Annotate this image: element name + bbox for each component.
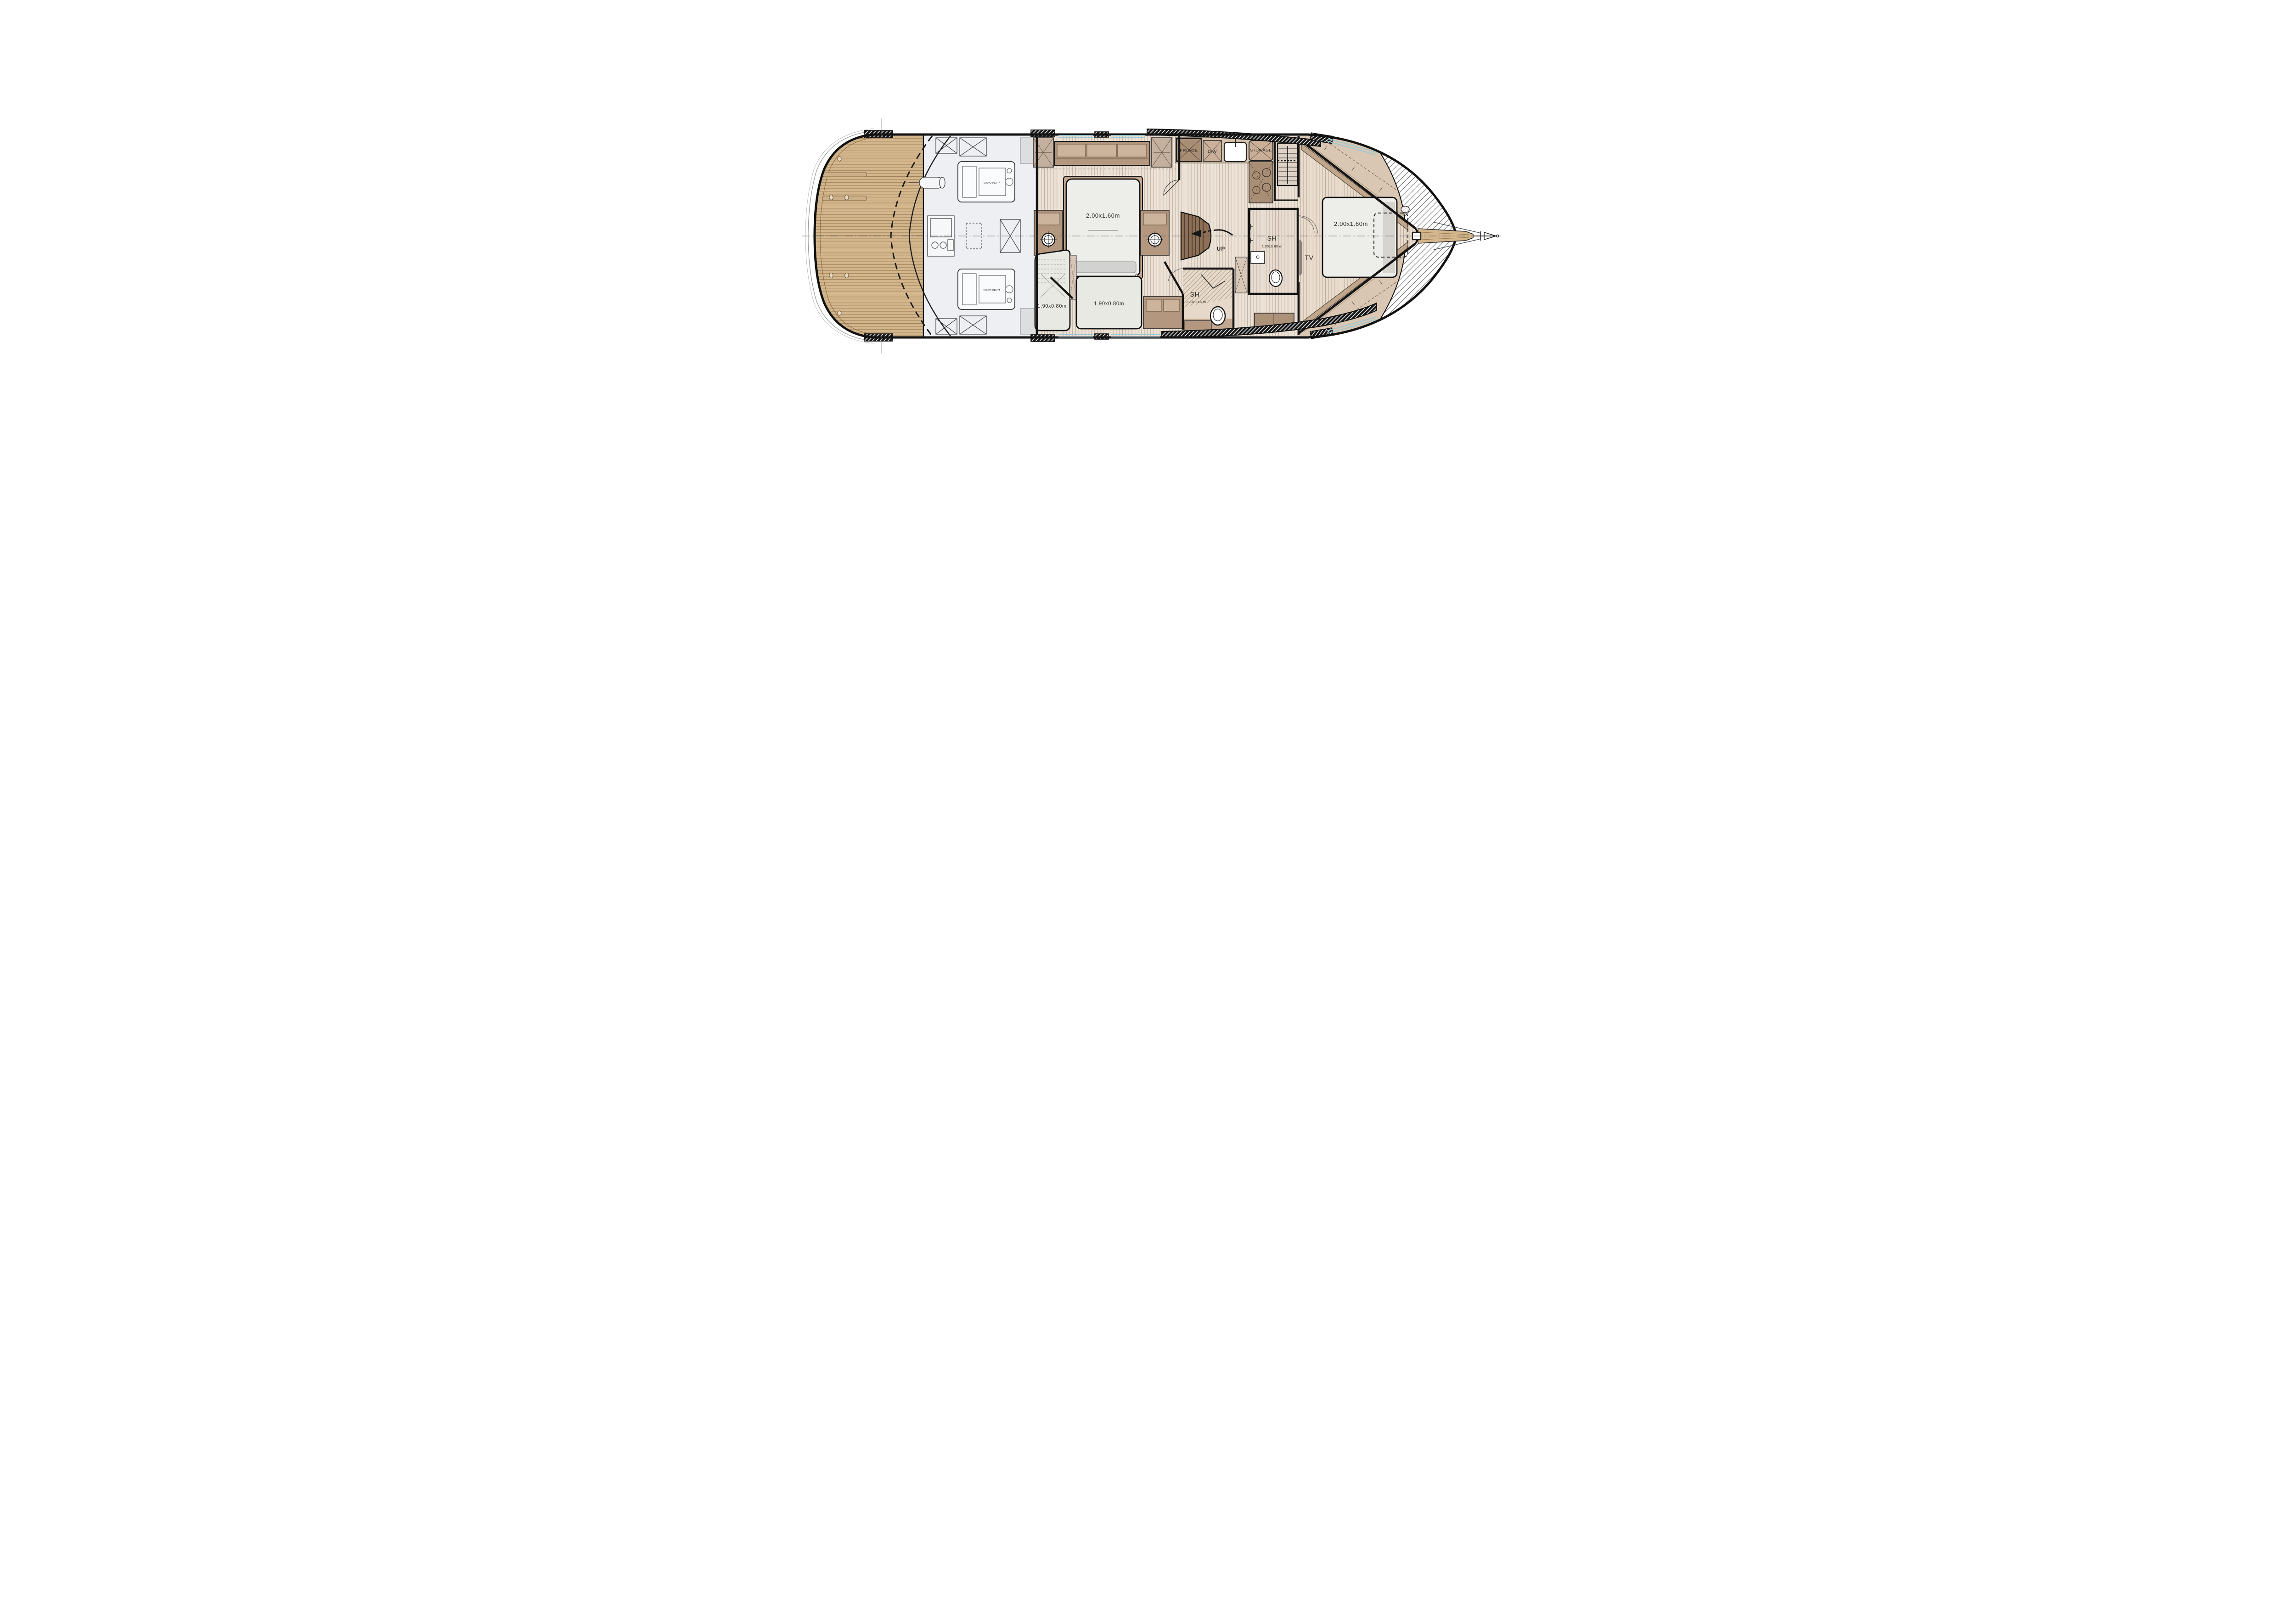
floorplan-svg: VOLVO PENTA VOLVO PENTA [794, 0, 1502, 472]
vip-companion-stairs [1277, 143, 1298, 185]
aft-head-vanity [1185, 320, 1211, 331]
engine-port-label: VOLVO PENTA [984, 182, 1001, 185]
engine-starboard-label: VOLVO PENTA [984, 289, 1001, 292]
lazarette-hatch [822, 196, 867, 201]
fwd-head-sink [1251, 252, 1265, 264]
nightstand-stbd [1141, 210, 1169, 255]
nightstand-port [1034, 210, 1063, 255]
engine-port-block: VOLVO PENTA [958, 162, 1015, 202]
cooktop [1249, 162, 1273, 203]
dishwasher: D/W [1203, 140, 1221, 162]
side-locker [1020, 309, 1036, 334]
tv-label: TV [1305, 254, 1313, 261]
toilet-aft [1210, 307, 1225, 325]
vip-bed-dims-label: 2.00x1.60m [1334, 220, 1368, 227]
stowage-locker: STOWAGE [1249, 140, 1273, 161]
corridor-closet [1235, 257, 1247, 293]
shower-aft-label: SH [1190, 291, 1200, 298]
guest-bed-inboard-label: 1.90x0.80m [1094, 301, 1124, 307]
shower-aft-dims-label: 0.90x0.65 m [1186, 300, 1206, 304]
fridge-label: FRIDGE [1180, 148, 1198, 153]
guest-dresser [1143, 297, 1183, 329]
master-wardrobe-stbd [1152, 138, 1172, 167]
guest-bed-outboard-label: 1.90x0.80m [1037, 303, 1066, 309]
master-bed-dims-label: 2.00x1.60m [1086, 212, 1120, 219]
toilet-fwd [1269, 270, 1282, 286]
deck-hatch [1401, 206, 1409, 213]
shower-fwd-dims-label: 1.00x0.65 m [1262, 244, 1283, 248]
yacht-lower-deck-plan: VOLVO PENTA VOLVO PENTA [794, 0, 1502, 472]
stowage-label: STOWAGE [1250, 148, 1272, 152]
guest-bed-inboard: 1.90x0.80m [1076, 276, 1142, 329]
master-bed-pillows [1070, 262, 1136, 273]
engine-starboard-block: VOLVO PENTA [958, 269, 1015, 309]
master-sofa [1054, 141, 1150, 165]
dishwasher-label: D/W [1208, 149, 1217, 154]
lazarette-hatch [822, 172, 867, 177]
stairs-up-label: UP [1217, 246, 1226, 252]
shower-fwd-label: SH [1267, 235, 1277, 242]
